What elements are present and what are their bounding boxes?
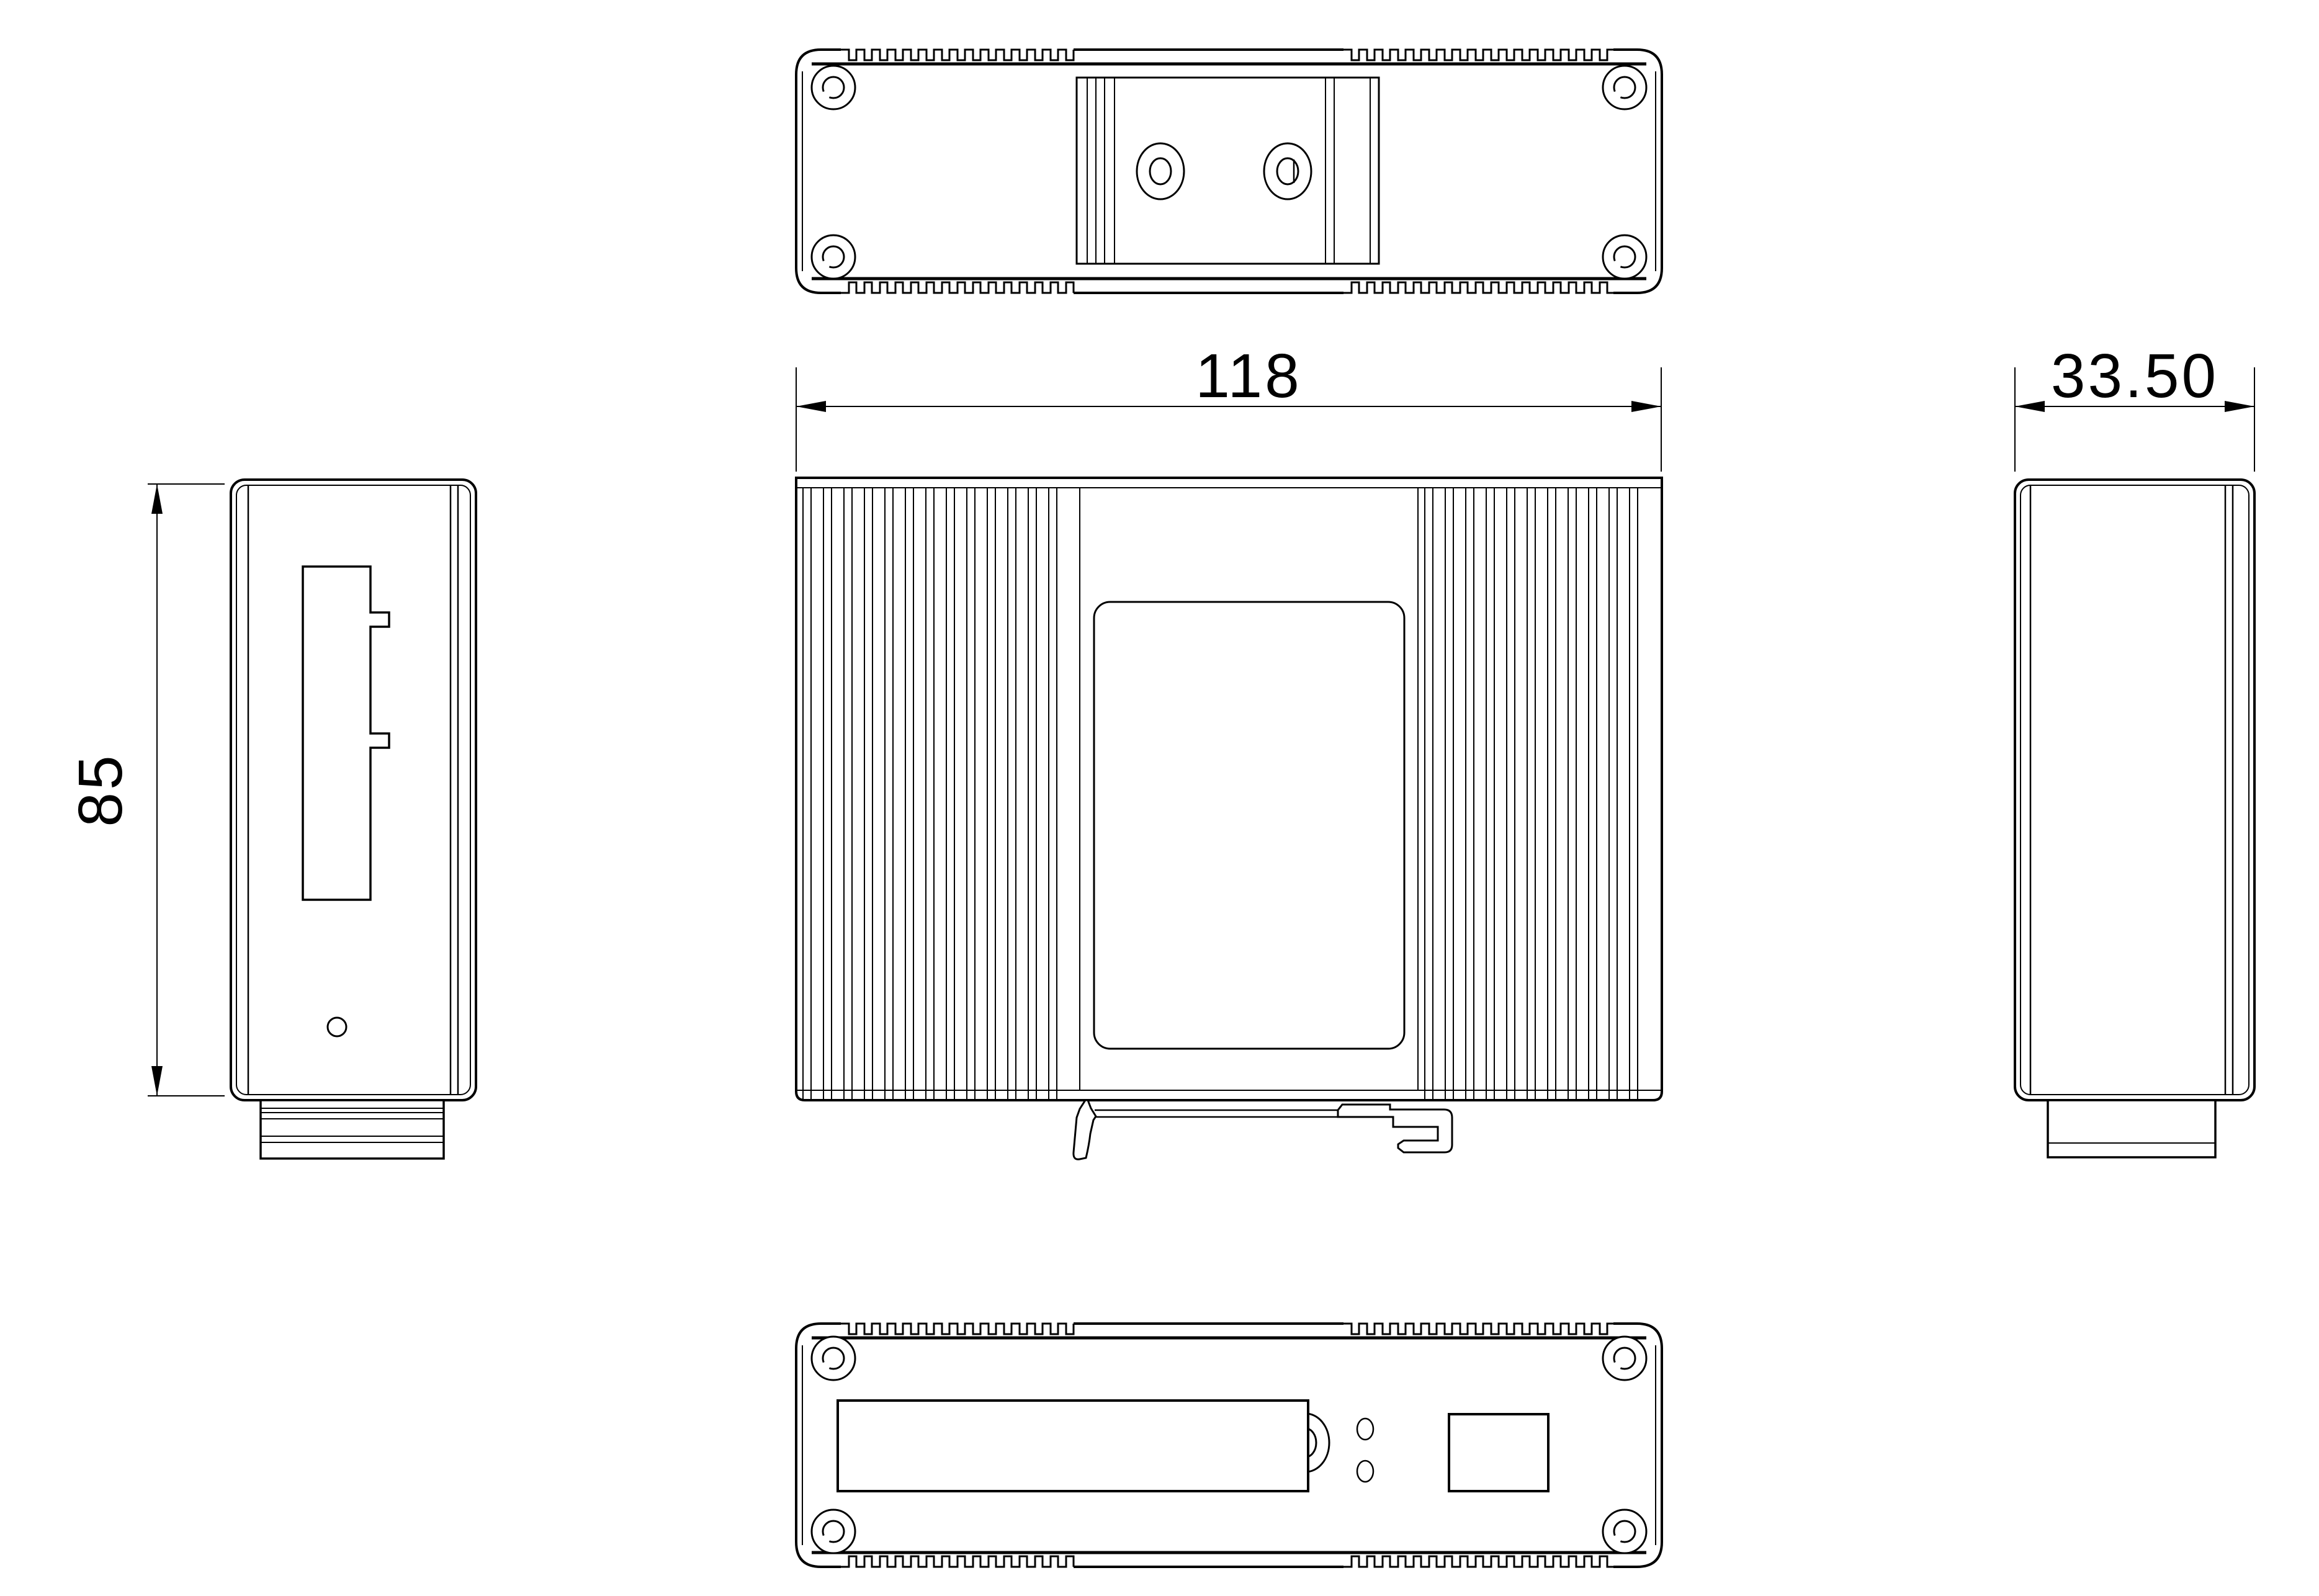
drawing-sheet: 118 33.50 85 bbox=[0, 0, 2319, 1596]
arrowhead bbox=[2015, 401, 2045, 412]
right-side-view bbox=[2015, 480, 2254, 1157]
terminal-cutout bbox=[838, 1401, 1308, 1491]
arrowhead bbox=[151, 484, 163, 514]
io-cutout bbox=[1449, 1414, 1548, 1491]
arrowhead bbox=[151, 1066, 163, 1096]
arrowhead bbox=[2225, 401, 2254, 412]
bottom-view bbox=[796, 1322, 1662, 1569]
dimension-width: 118 bbox=[796, 341, 1661, 472]
dimension-depth-value: 33.50 bbox=[2051, 341, 2218, 411]
right-view-outline bbox=[2015, 480, 2254, 1100]
dimension-height-value: 85 bbox=[66, 753, 135, 827]
arrowhead bbox=[1631, 401, 1661, 412]
dimension-depth: 33.50 bbox=[2015, 341, 2254, 472]
reset-hole bbox=[328, 1018, 346, 1036]
mounting-plate bbox=[1077, 78, 1379, 264]
dimension-width-value: 118 bbox=[1195, 341, 1301, 411]
top-view bbox=[796, 48, 1662, 295]
arrowhead bbox=[796, 401, 826, 412]
connector-block bbox=[2048, 1100, 2215, 1157]
connector-block bbox=[261, 1100, 444, 1159]
front-view bbox=[796, 478, 1662, 1159]
label-recess bbox=[1094, 602, 1404, 1049]
dimension-height: 85 bbox=[66, 484, 225, 1096]
din-rail-clip bbox=[1074, 1100, 1452, 1159]
left-side-view bbox=[231, 480, 476, 1159]
technical-drawing: 118 33.50 85 bbox=[0, 0, 2319, 1596]
